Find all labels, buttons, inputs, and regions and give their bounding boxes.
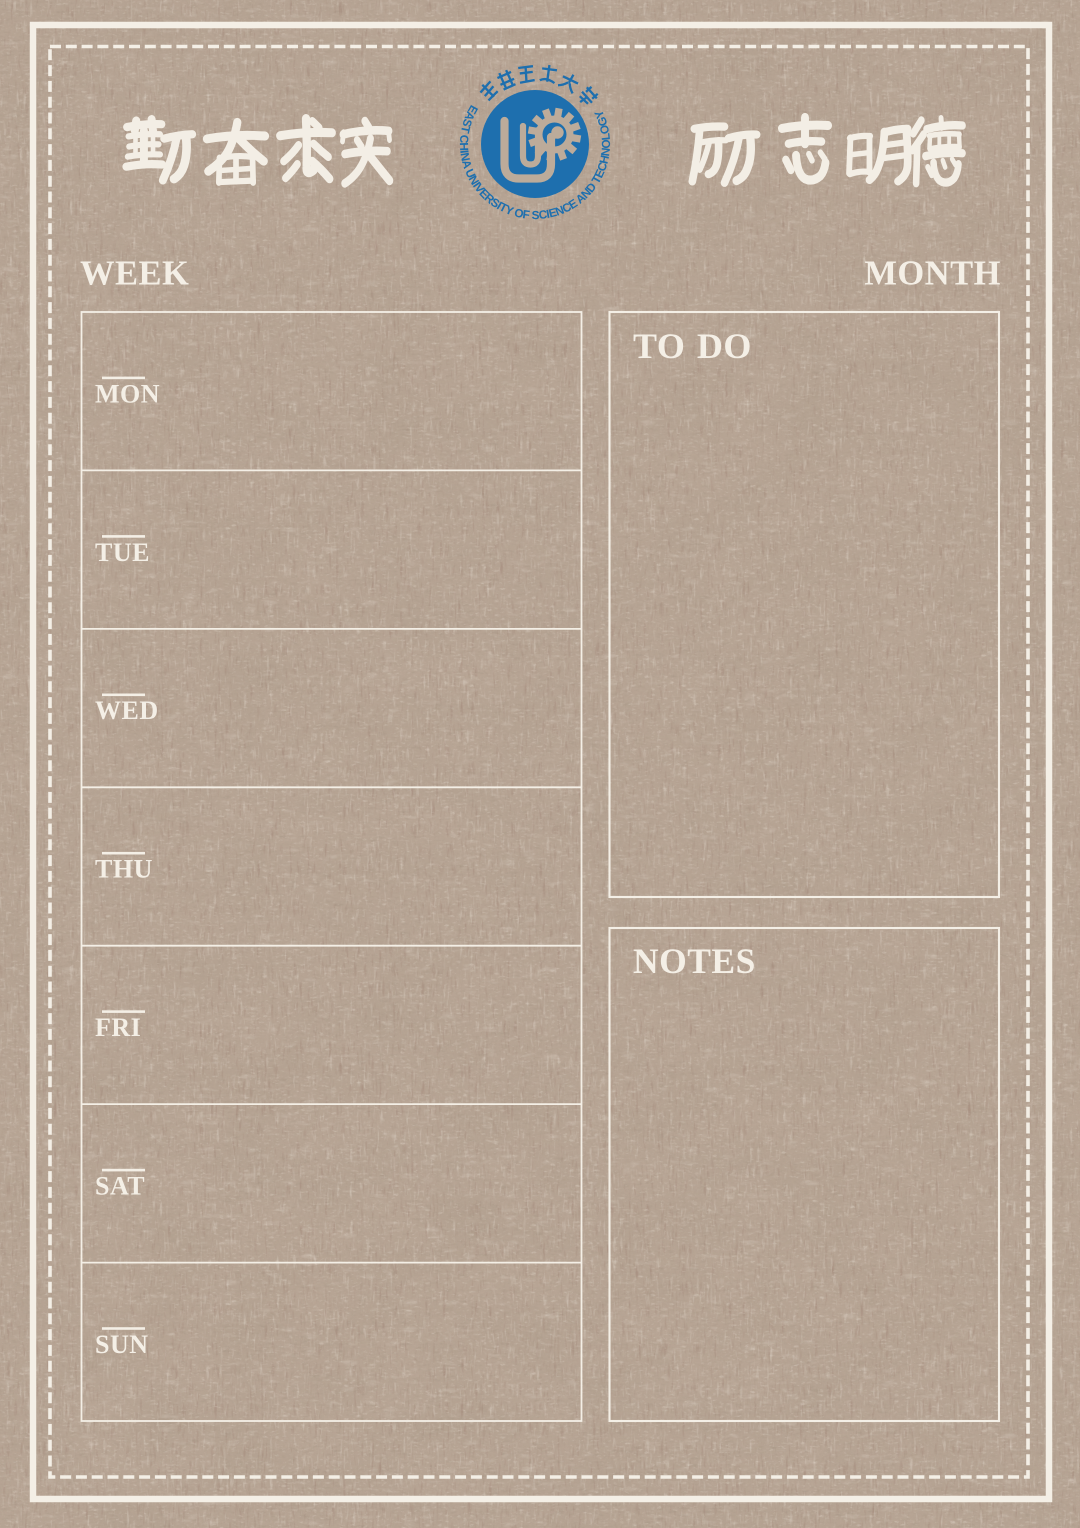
svg-text:MONTH: MONTH <box>864 255 1001 293</box>
svg-text:WEEK: WEEK <box>80 255 189 293</box>
svg-text:WED: WED <box>95 696 159 725</box>
svg-text:MON: MON <box>95 379 160 408</box>
svg-text:THU: THU <box>95 855 153 884</box>
svg-text:TUE: TUE <box>95 538 150 567</box>
svg-text:NOTES: NOTES <box>633 941 756 981</box>
svg-text:SUN: SUN <box>95 1330 149 1359</box>
svg-text:TO DO: TO DO <box>633 326 752 366</box>
svg-text:FRI: FRI <box>95 1013 141 1042</box>
svg-text:SAT: SAT <box>95 1172 145 1201</box>
